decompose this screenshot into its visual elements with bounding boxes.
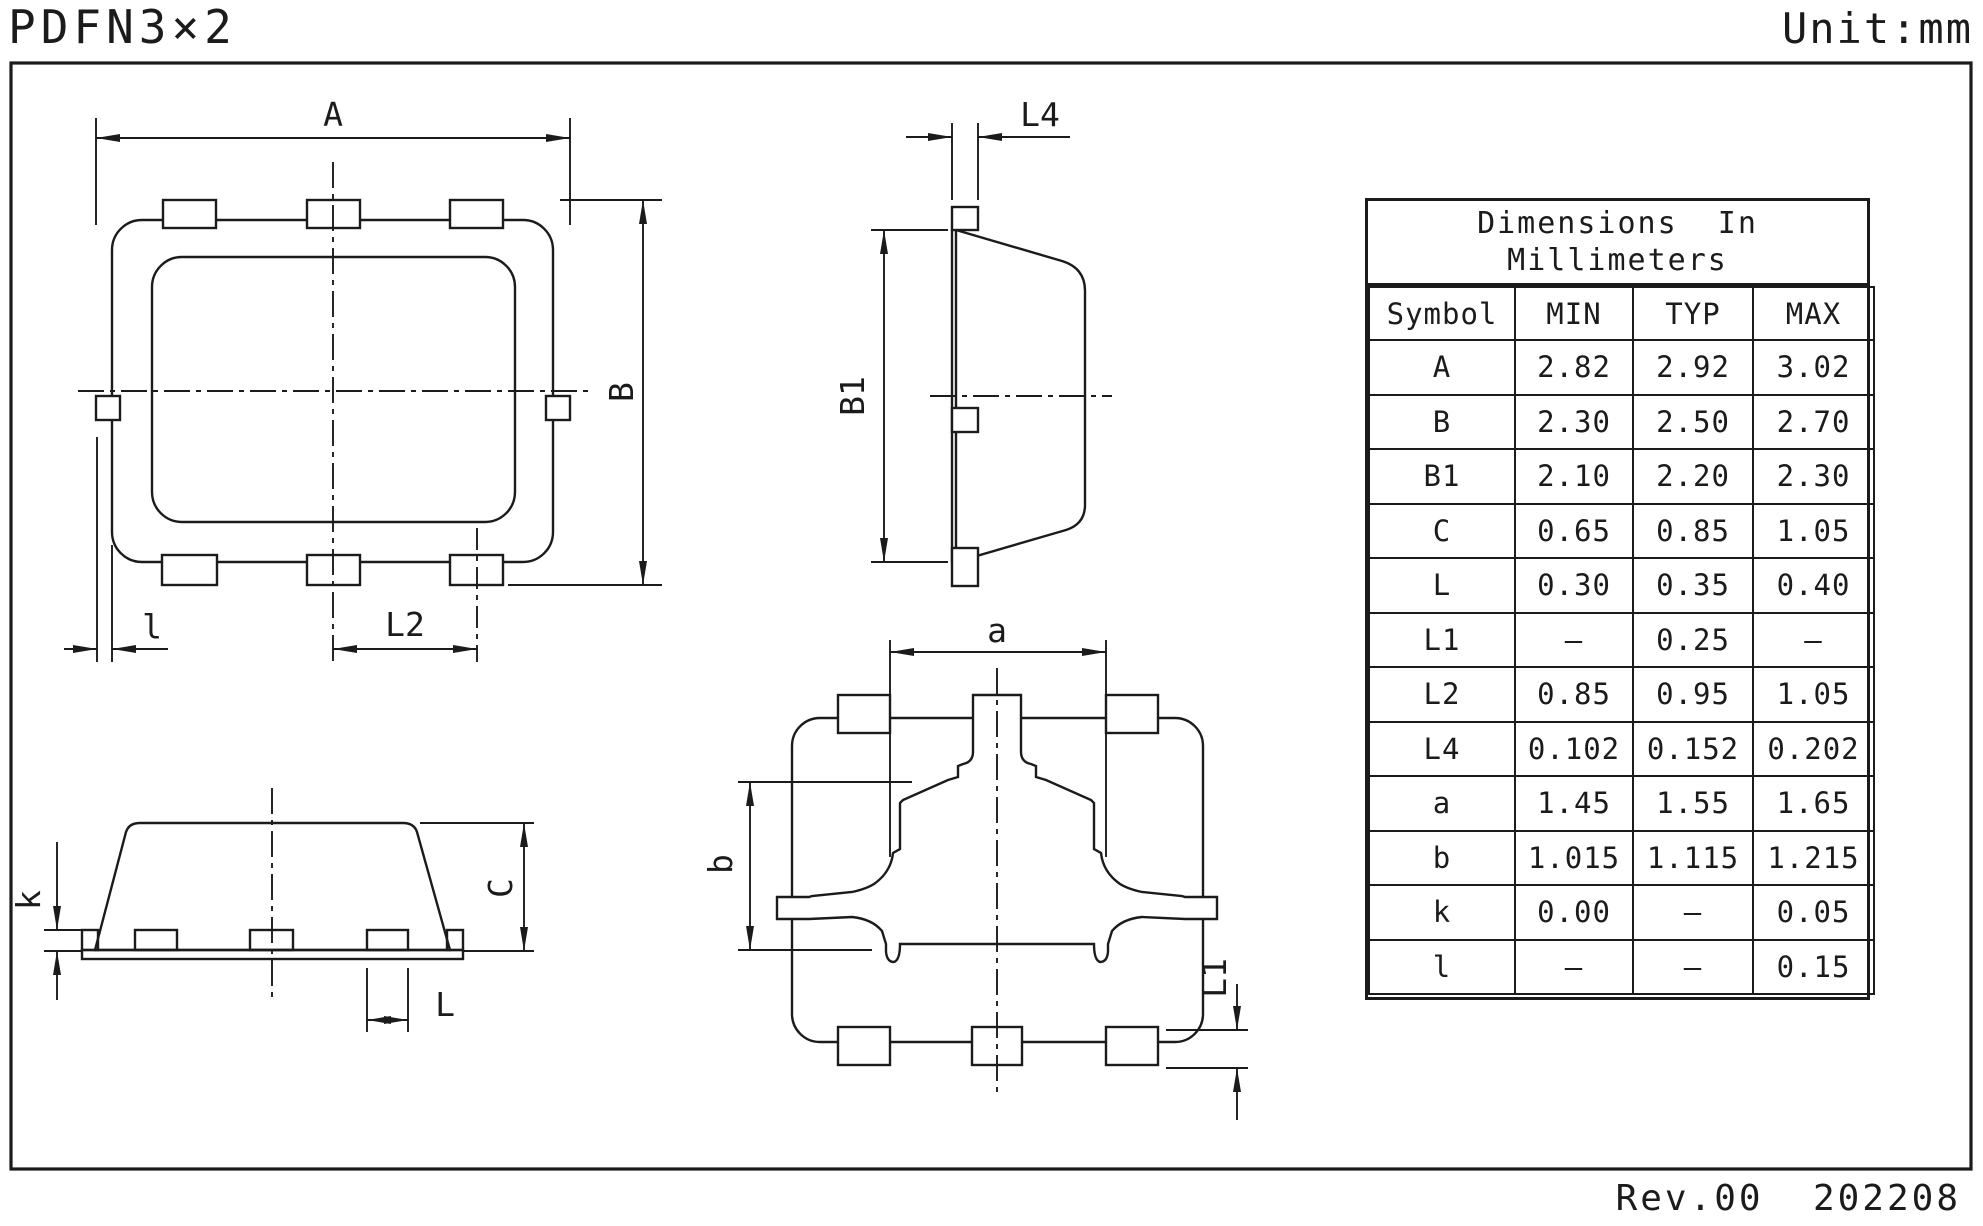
- table-header-row: Symbol MIN TYP MAX: [1369, 287, 1874, 340]
- symbol-cell: B: [1369, 395, 1515, 450]
- value-cell: 1.55: [1633, 776, 1753, 831]
- dimensions-table: Dimensions In Millimeters Symbol MIN TYP…: [1365, 198, 1870, 1000]
- value-cell: 1.65: [1753, 776, 1874, 831]
- top-view-centerlines: [78, 162, 588, 662]
- table-title-line1: Dimensions In: [1477, 205, 1758, 242]
- dim-label-a: a: [987, 611, 1007, 650]
- value-cell: 2.92: [1633, 340, 1753, 395]
- value-cell: 0.30: [1515, 558, 1633, 613]
- table-row: L20.850.951.05: [1369, 667, 1874, 722]
- value-cell: 0.102: [1515, 722, 1633, 777]
- table-row: b1.0151.1151.215: [1369, 831, 1874, 886]
- dim-label-L: L: [435, 985, 455, 1024]
- table-row: A2.822.923.02: [1369, 340, 1874, 395]
- symbol-cell: C: [1369, 504, 1515, 559]
- value-cell: –: [1753, 613, 1874, 668]
- front-view: [44, 788, 534, 1032]
- value-cell: 0.85: [1515, 667, 1633, 722]
- table-row: L1–0.25–: [1369, 613, 1874, 668]
- dim-label-l: l: [142, 607, 162, 646]
- value-cell: 2.82: [1515, 340, 1633, 395]
- value-cell: –: [1633, 940, 1753, 995]
- value-cell: 1.215: [1753, 831, 1874, 886]
- symbol-cell: k: [1369, 885, 1515, 940]
- table-row: L0.300.350.40: [1369, 558, 1874, 613]
- col-header-typ: TYP: [1633, 287, 1753, 340]
- table-title-line2: Millimeters: [1507, 242, 1728, 279]
- dim-label-C: C: [481, 878, 520, 898]
- dim-label-A: A: [323, 95, 343, 134]
- bottom-view: [738, 640, 1248, 1120]
- dim-label-L1: L1: [1195, 958, 1234, 998]
- symbol-cell: L2: [1369, 667, 1515, 722]
- symbol-cell: L1: [1369, 613, 1515, 668]
- value-cell: 0.95: [1633, 667, 1753, 722]
- value-cell: –: [1633, 885, 1753, 940]
- symbol-cell: l: [1369, 940, 1515, 995]
- dim-label-b: b: [701, 854, 740, 874]
- top-view: [64, 118, 662, 662]
- symbol-cell: A: [1369, 340, 1515, 395]
- value-cell: 0.00: [1515, 885, 1633, 940]
- value-cell: 2.30: [1515, 395, 1633, 450]
- value-cell: 1.05: [1753, 504, 1874, 559]
- value-cell: 1.015: [1515, 831, 1633, 886]
- dim-label-L2: L2: [385, 605, 425, 644]
- dim-label-B1: B1: [833, 376, 872, 416]
- dim-label-B: B: [602, 382, 641, 402]
- table-title: Dimensions In Millimeters: [1368, 201, 1867, 286]
- value-cell: 0.152: [1633, 722, 1753, 777]
- value-cell: 2.20: [1633, 449, 1753, 504]
- value-cell: 3.02: [1753, 340, 1874, 395]
- table-row: l––0.15: [1369, 940, 1874, 995]
- value-cell: 0.35: [1633, 558, 1753, 613]
- value-cell: 2.30: [1753, 449, 1874, 504]
- value-cell: 0.65: [1515, 504, 1633, 559]
- value-cell: 0.05: [1753, 885, 1874, 940]
- value-cell: 1.45: [1515, 776, 1633, 831]
- col-header-max: MAX: [1753, 287, 1874, 340]
- dim-table-body: A2.822.923.02B2.302.502.70B12.102.202.30…: [1369, 340, 1874, 994]
- value-cell: 1.115: [1633, 831, 1753, 886]
- value-cell: 1.05: [1753, 667, 1874, 722]
- side-view: [871, 123, 1112, 586]
- value-cell: 0.25: [1633, 613, 1753, 668]
- front-view-dimensions: [44, 823, 534, 1032]
- value-cell: 0.85: [1633, 504, 1753, 559]
- col-header-min: MIN: [1515, 287, 1633, 340]
- drawing-sheet: PDFN3×2 Unit:mm Rev.00 202208: [0, 0, 1983, 1226]
- table-row: a1.451.551.65: [1369, 776, 1874, 831]
- symbol-cell: L4: [1369, 722, 1515, 777]
- col-header-symbol: Symbol: [1369, 287, 1515, 340]
- value-cell: –: [1515, 940, 1633, 995]
- table-row: B2.302.502.70: [1369, 395, 1874, 450]
- value-cell: 2.70: [1753, 395, 1874, 450]
- value-cell: –: [1515, 613, 1633, 668]
- symbol-cell: B1: [1369, 449, 1515, 504]
- value-cell: 0.15: [1753, 940, 1874, 995]
- top-view-dimensions: [64, 118, 662, 662]
- symbol-cell: L: [1369, 558, 1515, 613]
- value-cell: 0.40: [1753, 558, 1874, 613]
- dim-label-k: k: [9, 890, 48, 910]
- symbol-cell: a: [1369, 776, 1515, 831]
- value-cell: 2.50: [1633, 395, 1753, 450]
- value-cell: 2.10: [1515, 449, 1633, 504]
- table-row: C0.650.851.05: [1369, 504, 1874, 559]
- dimensions-grid: Symbol MIN TYP MAX A2.822.923.02B2.302.5…: [1368, 286, 1875, 995]
- dim-label-L4: L4: [1020, 95, 1060, 134]
- value-cell: 0.202: [1753, 722, 1874, 777]
- symbol-cell: b: [1369, 831, 1515, 886]
- table-row: k0.00–0.05: [1369, 885, 1874, 940]
- table-row: L40.1020.1520.202: [1369, 722, 1874, 777]
- table-row: B12.102.202.30: [1369, 449, 1874, 504]
